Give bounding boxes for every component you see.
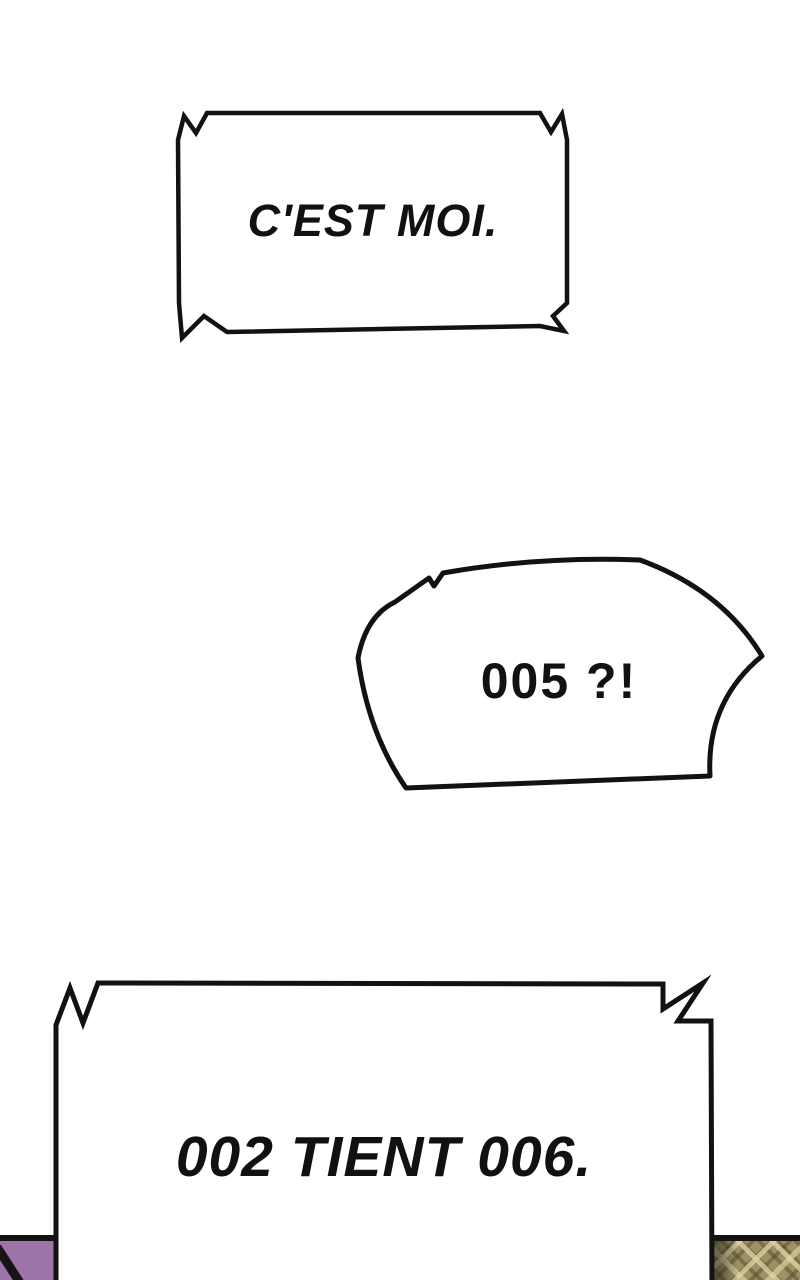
shout-bubble-text: 005 ?!: [398, 631, 720, 731]
caption-top-text: C'EST MOI.: [178, 116, 568, 326]
comic-page: C'EST MOI. 005 ?! 002 TIENT 006.: [0, 0, 800, 1280]
caption-bottom-text: 002 TIENT 006.: [56, 1078, 712, 1236]
